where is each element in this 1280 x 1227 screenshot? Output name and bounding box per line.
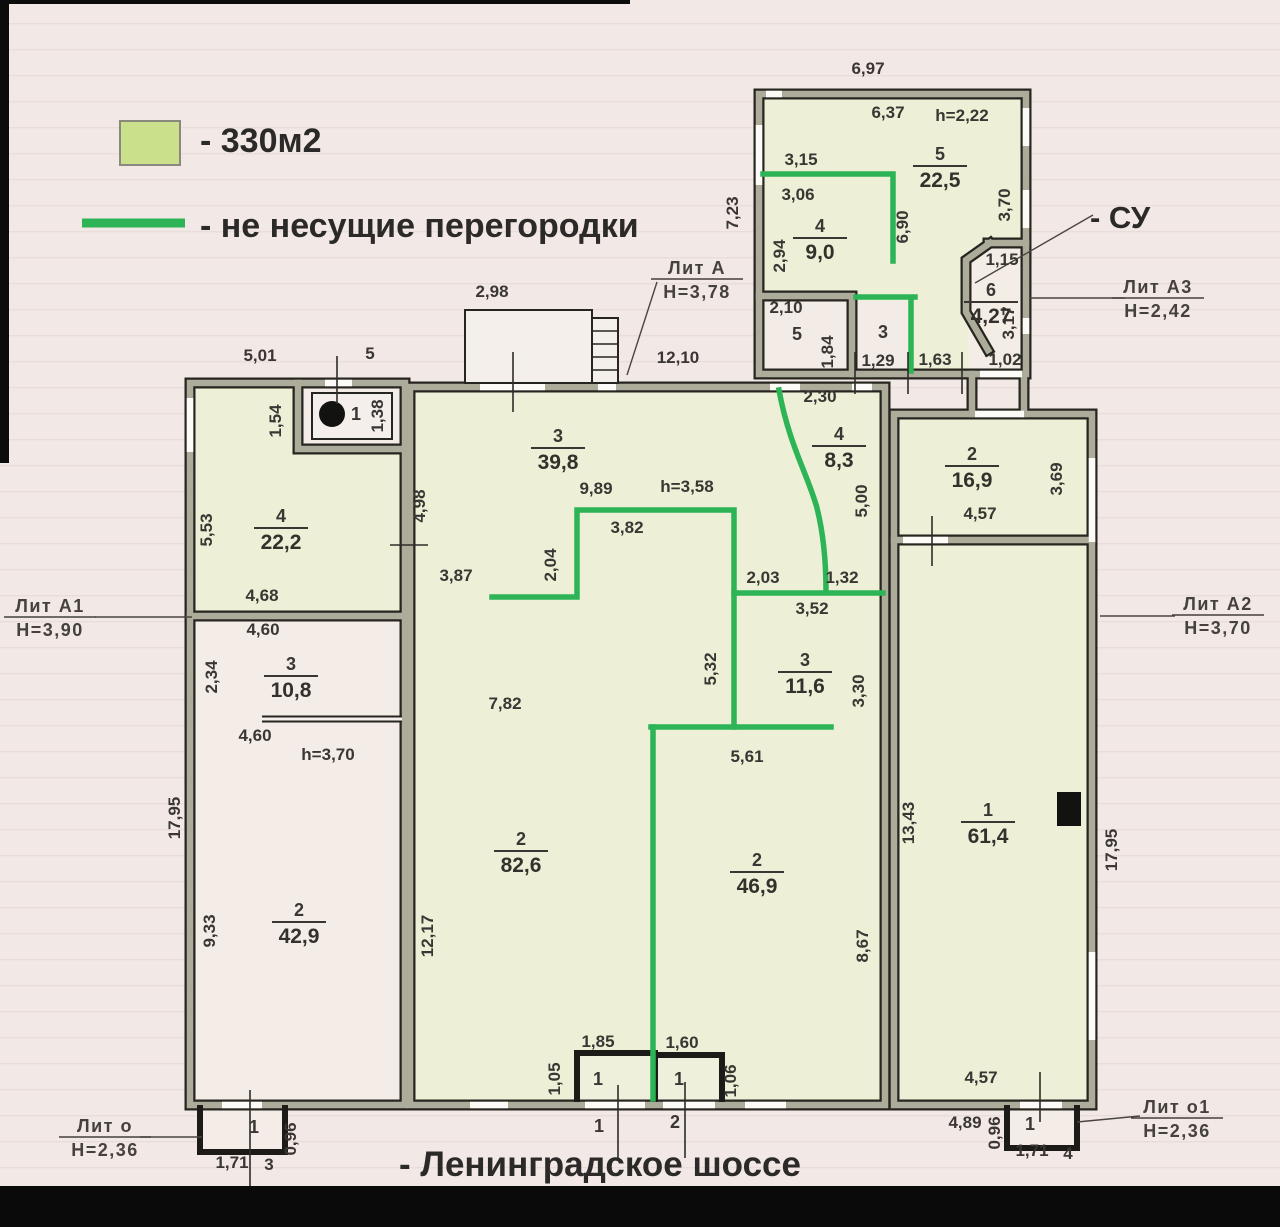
dimension-label: 1,84 xyxy=(818,335,837,369)
dimension-label: 2,03 xyxy=(746,568,779,587)
dimension-label: 12,17 xyxy=(418,915,437,958)
dimension-label: 4,60 xyxy=(238,726,271,745)
dimension-label: 4,57 xyxy=(964,1068,997,1087)
dimension-label: 1,29 xyxy=(861,351,894,370)
room-label-area: 10,8 xyxy=(271,679,312,702)
dimension-label: 3,30 xyxy=(849,674,868,707)
room-label-number: 3 xyxy=(553,426,563,446)
dimension-label: 4,68 xyxy=(245,586,278,605)
dimension-label: 3 xyxy=(264,1155,273,1174)
dimension-label: 1,05 xyxy=(545,1062,564,1095)
dimension-label: 3,87 xyxy=(439,566,472,585)
room-label-number: 5 xyxy=(935,144,945,164)
bathroom-callout-label: - СУ xyxy=(1090,200,1151,235)
dimension-label: 9,33 xyxy=(200,914,219,947)
dimension-label: 0,96 xyxy=(281,1122,300,1155)
room-label-number: 1 xyxy=(983,800,993,820)
dimension-label: 3,82 xyxy=(610,518,643,537)
room-label-number: 4 xyxy=(276,506,286,526)
legend-partition-label: - не несущие перегородки xyxy=(200,207,639,245)
dimension-label: 6,97 xyxy=(851,59,884,78)
room-label-area: 22,2 xyxy=(261,531,302,554)
room-number: 1 xyxy=(1025,1114,1035,1134)
room-label-area: 39,8 xyxy=(538,451,579,474)
lit-label-name: Лит о1 xyxy=(1143,1097,1211,1117)
street-label: - Ленинградское шоссе xyxy=(399,1145,801,1184)
lit-label-name: Лит А xyxy=(668,258,726,278)
riser-block-icon xyxy=(1057,792,1081,826)
room-label-area: 11,6 xyxy=(785,675,825,698)
lit-label-name: Лит о xyxy=(77,1116,133,1136)
lit-label-height: Н=2,42 xyxy=(1124,301,1192,321)
dimension-label: 2,30 xyxy=(803,387,836,406)
dimension-label: 17,95 xyxy=(1102,829,1121,872)
dimension-label: 2,10 xyxy=(769,298,802,317)
scanned-floor-plan-page: Avito xyxy=(0,0,1280,1227)
dimension-label: 4 xyxy=(1063,1144,1073,1163)
dimension-label: h=2,22 xyxy=(935,106,988,125)
room-label-area: 22,5 xyxy=(920,169,961,192)
lit-label-name: Лит А1 xyxy=(15,596,85,616)
scan-edge-left xyxy=(0,0,9,463)
dimension-label: 4,60 xyxy=(246,620,279,639)
dimension-label: 12,10 xyxy=(657,348,700,367)
dimension-label: 5,61 xyxy=(730,747,763,766)
dimension-label: 2,34 xyxy=(202,660,221,694)
lit-label-height: Н=2,36 xyxy=(1143,1121,1211,1141)
lit-label-height: Н=2,36 xyxy=(71,1140,139,1160)
room-number: 1 xyxy=(593,1069,603,1089)
vestibule1-fill xyxy=(577,1053,655,1103)
dimension-label: 2,94 xyxy=(770,239,789,273)
room-number: 1 xyxy=(249,1117,259,1137)
dimension-label: 5,00 xyxy=(852,484,871,517)
room-number: 2 xyxy=(670,1112,680,1132)
dimension-label: h=3,58 xyxy=(660,477,713,496)
room-label-area: 4,27 xyxy=(971,305,1012,328)
dimension-label: 1,38 xyxy=(368,399,387,432)
stair-box xyxy=(592,318,618,383)
dimension-label: 9,89 xyxy=(579,479,612,498)
dimension-label: 13,43 xyxy=(899,802,918,845)
lit-label-height: Н=3,78 xyxy=(663,282,731,302)
room-number: 1 xyxy=(351,404,361,424)
dimension-label: 3,70 xyxy=(995,188,1014,221)
dimension-label: 5,53 xyxy=(197,513,216,546)
dimension-label: 1,06 xyxy=(721,1064,740,1097)
room-label-area: 82,6 xyxy=(501,854,542,877)
lit-label-name: Лит А3 xyxy=(1123,277,1193,297)
dimension-label: 1,85 xyxy=(581,1032,614,1051)
dimension-label: 1,02 xyxy=(988,350,1021,369)
dimension-label: 4,89 xyxy=(948,1113,981,1132)
dimension-label: 2,04 xyxy=(541,548,560,582)
dimension-label: h=3,70 xyxy=(301,745,354,764)
dimension-label: 8,67 xyxy=(853,929,872,962)
dimension-label: 3,52 xyxy=(795,599,828,618)
chimney-box xyxy=(465,310,592,383)
room-label-area: 46,9 xyxy=(737,875,778,898)
floor-plan-svg: Avito xyxy=(0,0,1280,1227)
shaft-circle-icon xyxy=(319,401,345,427)
room-number: 5 xyxy=(792,324,802,344)
dimension-label: 1,71 xyxy=(215,1153,248,1172)
vestibule2-fill xyxy=(655,1055,722,1102)
room-label-number: 6 xyxy=(986,280,996,300)
room-label-number: 2 xyxy=(294,900,304,920)
dimension-label: 6,37 xyxy=(871,103,904,122)
room-label-area: 42,9 xyxy=(279,925,320,948)
dimension-label: 3,69 xyxy=(1047,462,1066,495)
room-number: 1 xyxy=(594,1116,604,1136)
dimension-label: 2,98 xyxy=(475,282,508,301)
room-label-area: 9,0 xyxy=(805,241,834,264)
dimension-label: 5,01 xyxy=(243,346,276,365)
room-label-number: 2 xyxy=(752,850,762,870)
dimension-label: 1,71 xyxy=(1015,1141,1048,1160)
legend-area-swatch xyxy=(120,121,180,165)
dimension-label: 3,06 xyxy=(781,185,814,204)
room-number: 1 xyxy=(674,1069,684,1089)
dimension-label: 6,90 xyxy=(893,210,912,243)
room-label-number: 2 xyxy=(516,829,526,849)
room-number: 3 xyxy=(878,322,888,342)
room-label-area: 8,3 xyxy=(824,449,853,472)
dimension-label: 7,82 xyxy=(488,694,521,713)
room-label-number: 4 xyxy=(815,216,825,236)
dimension-label: 5 xyxy=(365,344,374,363)
room-label-number: 3 xyxy=(286,654,296,674)
porch-left-fill xyxy=(200,1105,285,1152)
dimension-label: 17,95 xyxy=(165,797,184,840)
dimension-label: 0,96 xyxy=(985,1116,1004,1149)
lit-label-height: Н=3,70 xyxy=(1184,618,1252,638)
lit-label-name: Лит А2 xyxy=(1183,594,1253,614)
legend-area-label: - 330м2 xyxy=(200,122,322,160)
dimension-label: 5,32 xyxy=(701,652,720,685)
dimension-label: 1,54 xyxy=(266,404,285,438)
dimension-label: 1,32 xyxy=(825,568,858,587)
room-label-number: 3 xyxy=(800,650,810,670)
dimension-label: 1,63 xyxy=(918,350,951,369)
room-label-number: 4 xyxy=(834,424,844,444)
room-label-number: 2 xyxy=(967,444,977,464)
lit-label-height: Н=3,90 xyxy=(16,620,84,640)
scan-edge-bottom xyxy=(0,1186,1280,1227)
dimension-label: 7,23 xyxy=(723,196,742,229)
dimension-label: 1,60 xyxy=(665,1033,698,1052)
dimension-label: 4,57 xyxy=(963,504,996,523)
room-label-area: 61,4 xyxy=(968,825,1009,848)
dimension-label: 1,15 xyxy=(985,250,1018,269)
dimension-label: 3,15 xyxy=(784,150,817,169)
room-label-area: 16,9 xyxy=(952,469,993,492)
dimension-label: 4,98 xyxy=(410,489,429,522)
scan-edge-top xyxy=(0,0,630,4)
